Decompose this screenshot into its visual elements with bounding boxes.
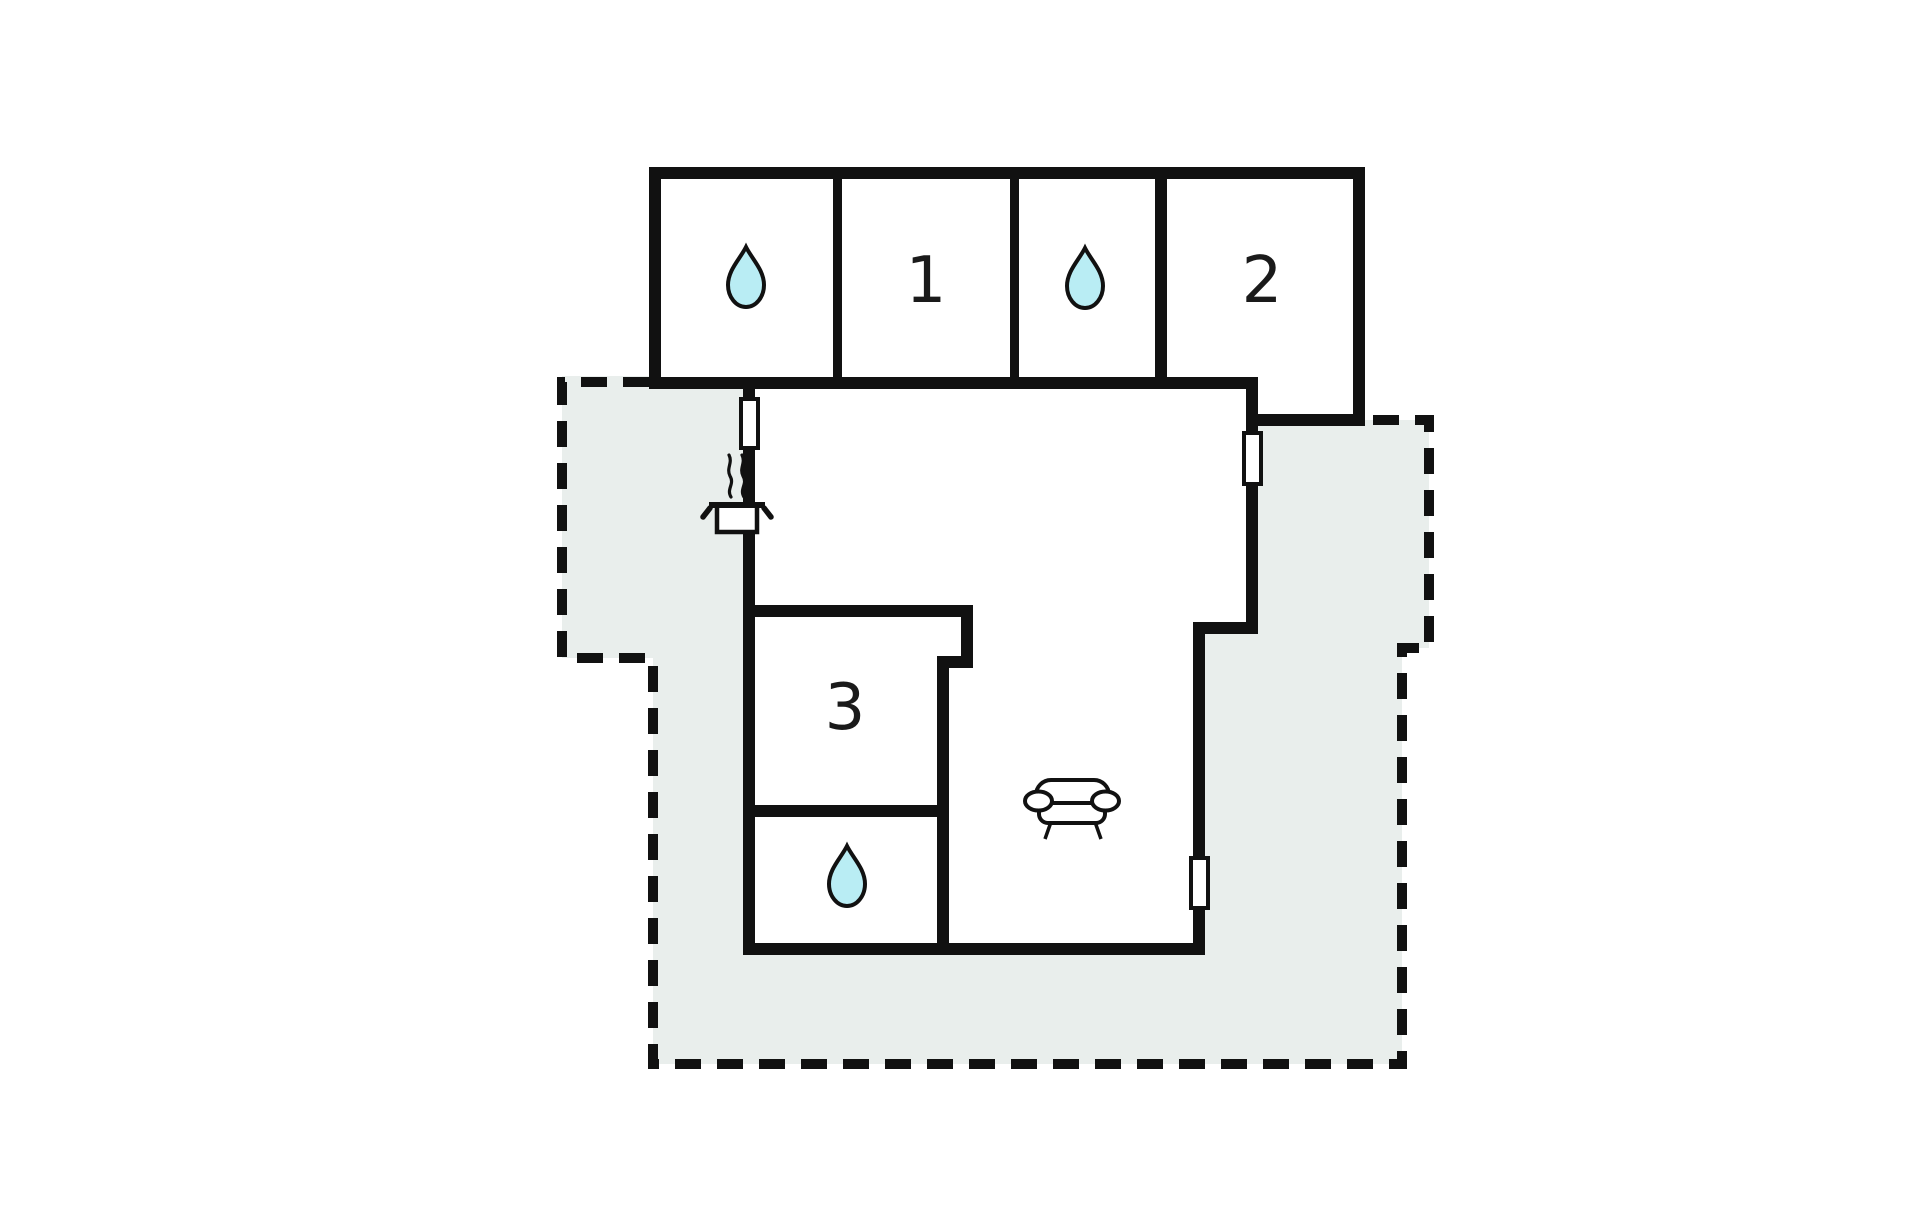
steam-line: [742, 455, 745, 497]
steam-line: [729, 455, 732, 497]
floor-plan-page: 123: [0, 0, 1920, 1221]
room-label-bedroom-3: 3: [825, 671, 866, 745]
floor-plan-canvas: 123: [0, 0, 1920, 1221]
pot-body: [717, 505, 757, 532]
bedroom-3-top-wall: [743, 605, 973, 617]
door-window-right-upper: [1244, 433, 1261, 484]
main-bottom-wall: [743, 943, 1205, 955]
divider-bath2-bed2: [1155, 179, 1167, 377]
wing-right-wall: [1353, 167, 1365, 426]
wing-bottom-wall: [649, 377, 1258, 389]
sofa-armrest-right: [1092, 792, 1119, 811]
sofa-armrest-left: [1025, 792, 1052, 811]
bedroom-2-bottom-wall: [1246, 414, 1365, 426]
floor-plan-svg: 123: [0, 0, 1920, 1221]
divider-bath1-bed1: [833, 179, 842, 377]
divider-bed1-bath2: [1010, 179, 1019, 377]
wing-left-wall: [649, 167, 661, 389]
main-left-wall: [743, 377, 755, 955]
door-window-right-lower: [1191, 858, 1208, 908]
wing-top-wall: [649, 167, 1365, 179]
main-living-area-floor: [743, 377, 1258, 955]
room-label-bedroom-2: 2: [1242, 244, 1283, 318]
door-window-left: [741, 399, 758, 448]
divider-bed3-bath3: [743, 805, 949, 817]
room-label-bedroom-1: 1: [906, 244, 947, 318]
